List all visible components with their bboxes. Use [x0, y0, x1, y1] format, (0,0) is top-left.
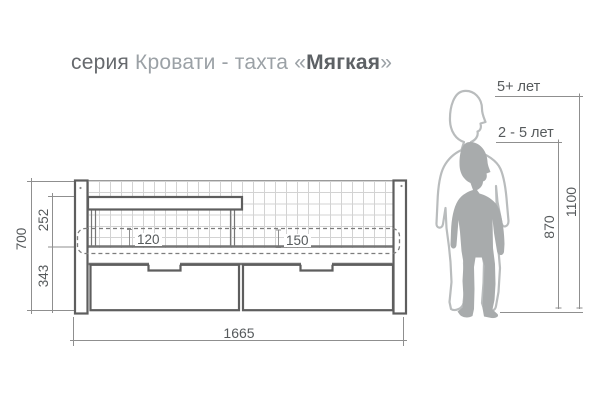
dim-120-label: 120: [135, 233, 162, 246]
drawer-right: [243, 265, 393, 310]
dim-252-label: 252: [36, 195, 56, 245]
dim-1100-label: 1100: [563, 177, 583, 227]
drawer-left: [91, 265, 240, 310]
age-younger-label: 2 - 5 лет: [498, 125, 554, 141]
bed-drawing-svg: [0, 0, 600, 400]
bed-backrest: [88, 197, 242, 210]
product-dimension-diagram: серия Кровати - тахта «Мягкая»: [0, 0, 600, 400]
dim-870-label: 870: [541, 202, 561, 252]
dim-1665-label: 1665: [209, 325, 269, 341]
dim-150-label: 150: [284, 234, 311, 247]
backrest-legs: [92, 210, 235, 246]
post-screw-dot-right: [400, 185, 402, 187]
post-screw-dot-left: [79, 187, 81, 189]
age-older-label: 5+ лет: [497, 79, 540, 95]
bed-headboard-post: [75, 181, 88, 314]
dim-343-label: 343: [36, 251, 56, 301]
mattress-dashed-outline: [78, 229, 400, 254]
dim-700-label: 700: [14, 214, 34, 264]
